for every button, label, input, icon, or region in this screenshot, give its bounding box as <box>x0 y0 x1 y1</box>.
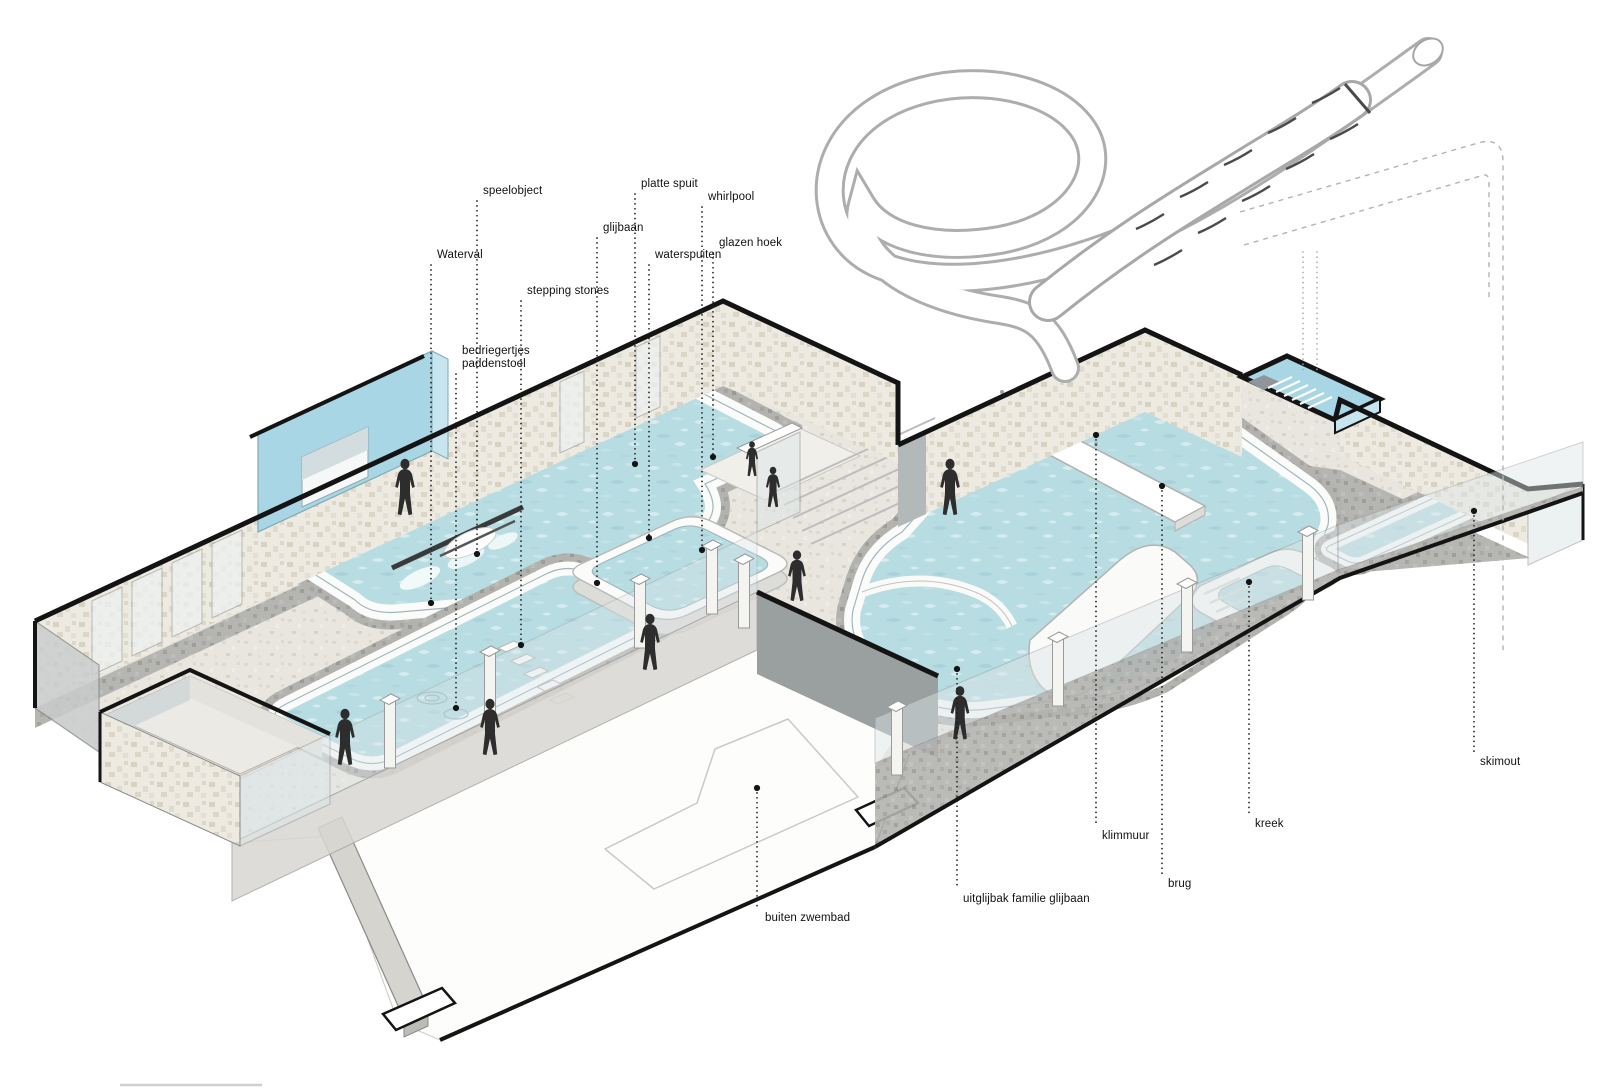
diagram-canvas <box>0 0 1600 1088</box>
doorway <box>898 432 926 527</box>
diagram-stage: speelobjectplatte spuitwhirlpoolglijbaan… <box>0 0 1600 1088</box>
